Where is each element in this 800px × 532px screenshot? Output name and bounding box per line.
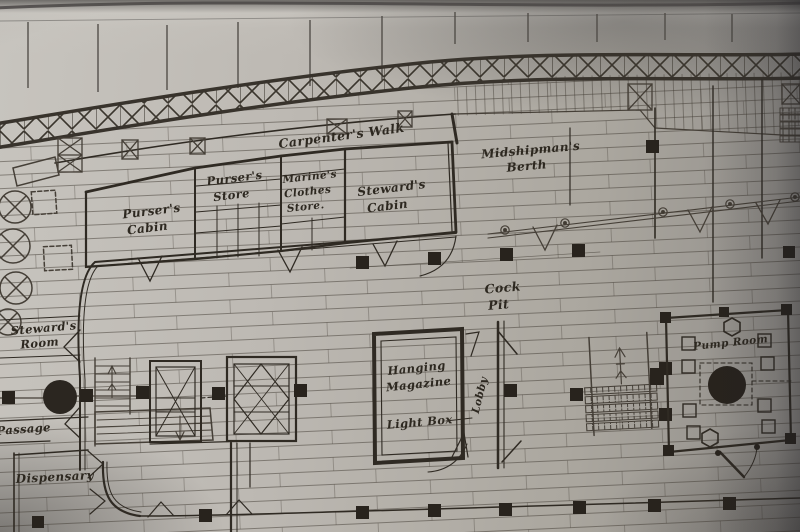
stanchion-post xyxy=(648,499,661,512)
corner-post xyxy=(785,433,796,444)
stanchion-post xyxy=(783,246,795,258)
stanchion-post xyxy=(199,509,212,522)
stanchion-post xyxy=(570,388,583,401)
label-cock-pit: Cock xyxy=(484,278,521,296)
stanchion-post xyxy=(294,384,307,397)
stanchion-post xyxy=(723,497,736,510)
corner-post xyxy=(660,312,671,323)
stanchion-post xyxy=(32,516,44,528)
stanchion-post xyxy=(499,503,512,516)
stanchion-post xyxy=(136,386,149,399)
corner-post xyxy=(719,307,729,317)
corner-post xyxy=(663,445,674,456)
stanchion-post xyxy=(428,504,441,517)
corner-post xyxy=(781,304,792,315)
stanchion-post xyxy=(659,408,672,421)
stanchion-post xyxy=(356,256,369,269)
stanchion-post xyxy=(356,506,369,519)
mast-circle xyxy=(43,380,77,414)
stanchion-post xyxy=(500,248,513,261)
stanchion-post xyxy=(646,140,659,153)
pump-shaft-circle xyxy=(708,366,746,404)
stanchion-post xyxy=(2,391,15,404)
stanchion-post xyxy=(212,387,225,400)
paper-edge xyxy=(0,3,800,21)
stanchion-post xyxy=(573,501,586,514)
deck-plan-photo: Carpenter's Walk Purser's Store Marine's… xyxy=(0,0,800,532)
side-tab xyxy=(650,368,664,385)
stanchion-post xyxy=(80,389,93,402)
label-cock-pit: Pit xyxy=(486,296,509,313)
stanchion-post xyxy=(428,252,441,265)
stairs-top-right xyxy=(780,108,800,142)
deck-plan-drawing: Carpenter's Walk Purser's Store Marine's… xyxy=(0,0,800,532)
stanchion-post xyxy=(572,244,585,257)
stanchion-post xyxy=(504,384,517,397)
